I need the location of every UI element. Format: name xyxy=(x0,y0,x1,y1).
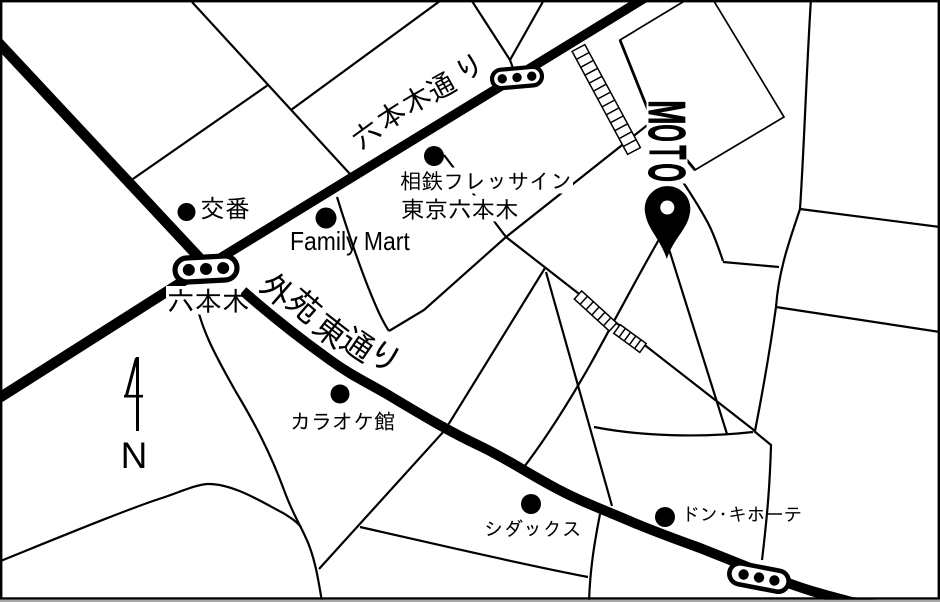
svg-text:Family Mart: Family Mart xyxy=(290,228,410,256)
svg-text:O: O xyxy=(637,163,696,182)
svg-text:T: T xyxy=(638,145,696,159)
svg-text:M: M xyxy=(638,100,696,124)
svg-text:N: N xyxy=(121,435,148,476)
svg-text:O: O xyxy=(637,124,694,141)
